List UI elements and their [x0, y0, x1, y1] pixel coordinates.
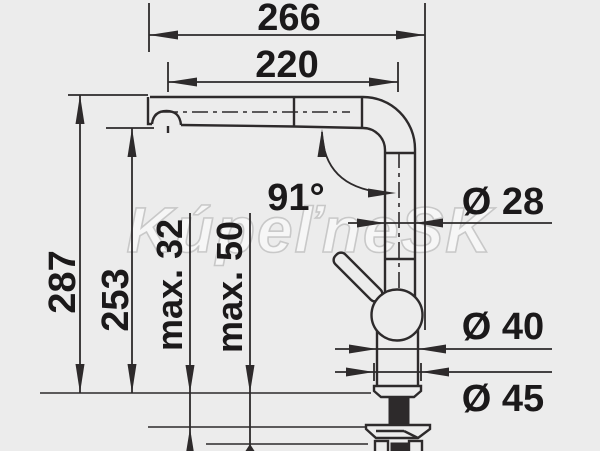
- spray-head-left-edge: [148, 97, 152, 124]
- dim-label-266: 266: [257, 0, 320, 39]
- arrow-down-icon: [186, 365, 195, 393]
- dim-label-d40: Ø 40: [462, 306, 544, 348]
- arrow-right-icon: [396, 31, 425, 40]
- arrow-up-icon: [76, 95, 85, 124]
- dim-spout-reach-220: 220: [168, 44, 398, 92]
- arrow-up-icon: [318, 129, 327, 157]
- arrow-up-icon: [246, 444, 255, 451]
- nut-center: [391, 443, 408, 451]
- dim-label-253: 253: [95, 268, 137, 331]
- nut-tab-left: [375, 441, 388, 451]
- arrow-right-icon: [346, 368, 374, 377]
- base-flange: [374, 386, 421, 397]
- reference-lines: [40, 393, 371, 444]
- dim-label-d28: Ø 28: [462, 181, 544, 223]
- arrow-right-icon: [369, 78, 398, 87]
- arrow-left-icon: [418, 345, 446, 354]
- drawing-canvas: KúpeľneSK 266 220 287 253 ma: [0, 0, 600, 451]
- dim-label-max32: max. 32: [149, 219, 190, 351]
- mixer-ball: [372, 290, 423, 341]
- nut-tab-right: [409, 441, 422, 451]
- arrow-down-icon: [246, 365, 255, 393]
- dim-max-50: max. 50: [209, 213, 255, 451]
- corner-inner-arc: [363, 128, 385, 150]
- arrow-up-icon: [186, 428, 195, 451]
- dim-label-91: 91°: [267, 177, 324, 219]
- arrow-right-icon: [349, 345, 377, 354]
- faucet-dimension-drawing: KúpeľneSK 266 220 287 253 ma: [0, 0, 600, 451]
- aerator-dome: [152, 111, 181, 125]
- angle-arc: [322, 132, 390, 193]
- spout-bottom-edge: [181, 125, 363, 128]
- dim-label-220: 220: [255, 44, 318, 86]
- dim-max-32: max. 32: [149, 213, 195, 451]
- dim-diameter-45: Ø 45: [335, 363, 552, 420]
- arrow-up-icon: [128, 128, 137, 157]
- arrow-left-icon: [149, 31, 178, 40]
- dim-label-d45: Ø 45: [462, 378, 544, 420]
- arrow-left-icon: [421, 368, 449, 377]
- dim-label-max50: max. 50: [209, 221, 250, 353]
- arrow-down-icon: [128, 364, 137, 393]
- threaded-shank: [389, 397, 409, 424]
- dim-diameter-40: Ø 40: [335, 306, 552, 354]
- dim-label-287: 287: [42, 250, 84, 313]
- arrow-left-icon: [168, 78, 197, 87]
- arrow-down-icon: [76, 364, 85, 393]
- corner-outer-arc: [363, 97, 415, 149]
